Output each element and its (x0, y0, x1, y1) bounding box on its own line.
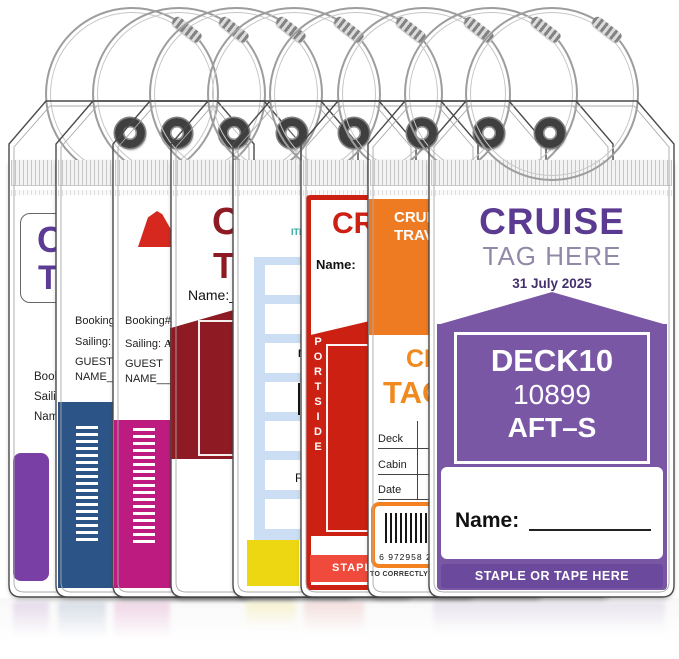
color-block: PORTSIDE (310, 320, 374, 536)
name-panel: Name: (441, 467, 663, 559)
brand-subtitle: TAG HERE (437, 241, 667, 272)
footer-text: TO CORRECTLY S (370, 571, 435, 578)
color-block (13, 453, 49, 581)
yellow-block (247, 540, 299, 586)
name-label: Name: (455, 509, 519, 533)
guest-label: GUEST (75, 356, 113, 368)
color-block (58, 402, 120, 588)
side-label: PORTSIDE (312, 336, 324, 526)
staple-bar: STAPLE OR TAPE HERE (441, 564, 663, 588)
brand-title: CRUISE (437, 201, 667, 243)
purple-peak (437, 292, 667, 325)
form-divider (417, 421, 418, 499)
grommet-icon (535, 118, 565, 148)
product-photo: CRUISE TAG Booking#: Sailing: Name: Book… (0, 0, 679, 659)
tag-insert: CRUISE TAG HERE 31 July 2025 DECK10 1089… (437, 195, 667, 590)
barcode-icon (133, 428, 155, 546)
name-line (529, 529, 651, 531)
deck-info-box: DECK10 10899 AFT–S (454, 332, 650, 464)
cabin-number: 10899 (457, 379, 647, 411)
barcode-icon (76, 426, 98, 542)
reflection-fade (0, 598, 679, 659)
deck-number: DECK10 (457, 343, 647, 379)
color-block (114, 420, 178, 588)
deck-position: AFT–S (457, 411, 647, 445)
reflection (0, 598, 679, 659)
sail-date: 31 July 2025 (437, 276, 667, 291)
guest-label: GUEST (125, 358, 163, 370)
luggage-tag-8: CRUISE TAG HERE 31 July 2025 DECK10 1089… (428, 100, 675, 598)
name-label: Name: (316, 257, 356, 272)
